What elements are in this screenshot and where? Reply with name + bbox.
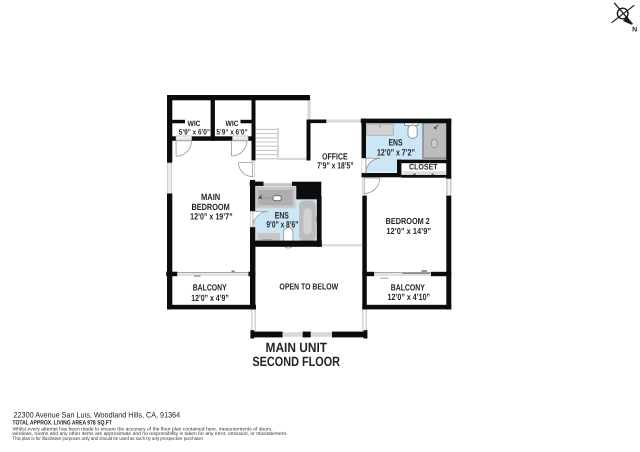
svg-text:ENS: ENS (388, 138, 402, 148)
svg-text:BALCONY: BALCONY (193, 283, 227, 293)
svg-text:5’9” x 6’0”: 5’9” x 6’0” (179, 127, 210, 136)
svg-text:SECOND FLOOR: SECOND FLOOR (252, 354, 340, 369)
svg-text:12’0” x 7’2”: 12’0” x 7’2” (377, 148, 415, 158)
svg-text:12’0” x 4’9”: 12’0” x 4’9” (191, 293, 229, 303)
svg-text:12’0” x 19’7”: 12’0” x 19’7” (190, 212, 233, 222)
svg-text:BALCONY: BALCONY (391, 283, 425, 293)
svg-text:12’0” x 4’10”: 12’0” x 4’10” (388, 292, 431, 302)
svg-text:MAIN: MAIN (201, 192, 220, 202)
svg-text:BEDROOM: BEDROOM (191, 202, 229, 212)
svg-text:22300 Avenue San Luis, Woodlan: 22300 Avenue San Luis, Woodland Hills, C… (14, 410, 181, 419)
svg-text:5’9” x 6’0”: 5’9” x 6’0” (216, 127, 247, 136)
svg-text:N: N (632, 26, 637, 33)
svg-text:7’9” x 18’5”: 7’9” x 18’5” (317, 161, 353, 171)
svg-text:This plan is for illustrative: This plan is for illustrative purposes o… (13, 436, 205, 442)
svg-text:OPEN TO BELOW: OPEN TO BELOW (279, 281, 338, 291)
svg-text:9’0” x 8’6”: 9’0” x 8’6” (266, 219, 298, 229)
svg-text:MAIN UNIT: MAIN UNIT (266, 340, 328, 355)
svg-text:CLOSET: CLOSET (409, 162, 438, 171)
svg-text:BEDROOM 2: BEDROOM 2 (386, 216, 430, 226)
svg-text:12’0” x 14’9”: 12’0” x 14’9” (386, 226, 431, 236)
